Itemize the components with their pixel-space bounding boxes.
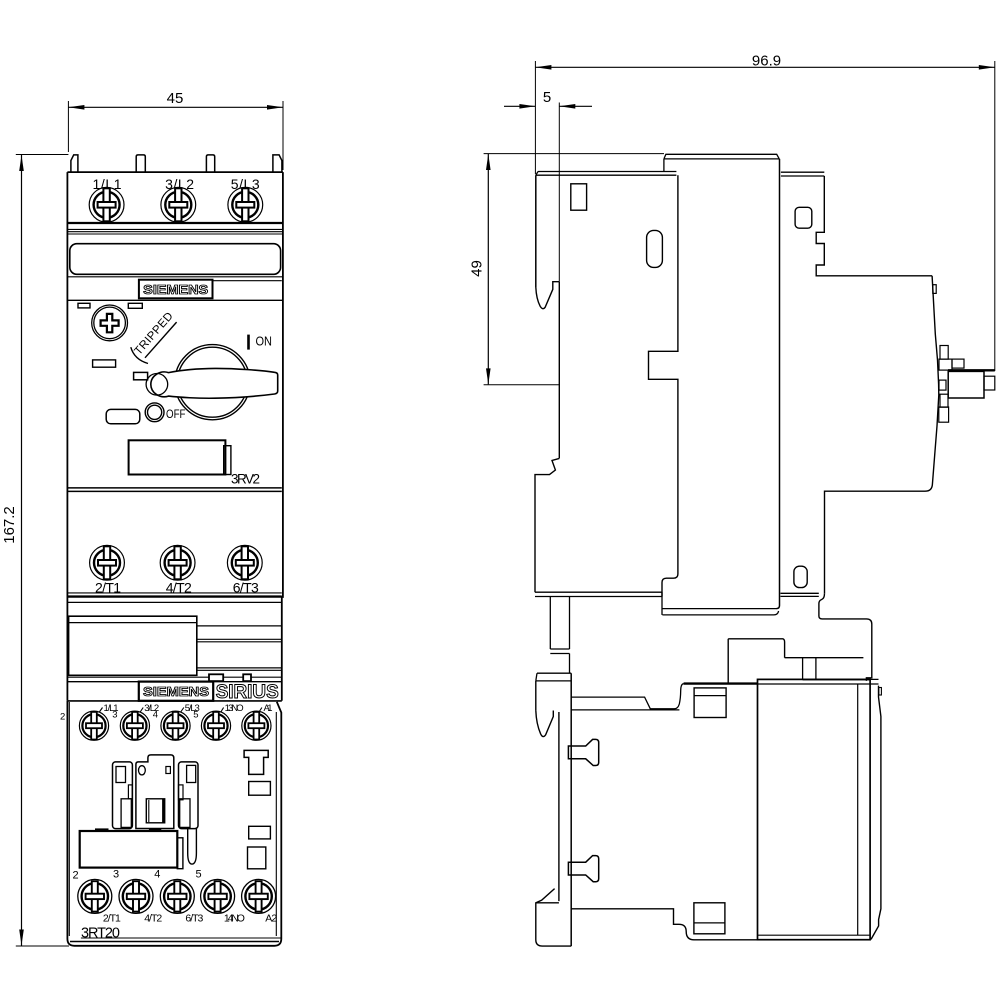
svg-text:4: 4 <box>153 710 158 721</box>
svg-text:13NO: 13NO <box>225 703 244 714</box>
svg-text:SIEMENS: SIEMENS <box>143 283 208 297</box>
svg-text:96.9: 96.9 <box>752 53 781 70</box>
svg-text:2: 2 <box>60 711 65 722</box>
svg-text:3: 3 <box>112 710 117 721</box>
svg-text:45: 45 <box>167 90 184 107</box>
svg-text:A2: A2 <box>265 913 277 925</box>
svg-text:A1: A1 <box>264 703 273 714</box>
svg-text:3: 3 <box>113 869 119 881</box>
svg-text:14NO: 14NO <box>224 913 245 925</box>
svg-text:5: 5 <box>543 89 551 106</box>
svg-text:5: 5 <box>196 869 202 881</box>
svg-text:SIEMENS: SIEMENS <box>143 685 209 699</box>
svg-text:167.2: 167.2 <box>1 506 18 544</box>
svg-text:OFF: OFF <box>166 407 186 421</box>
svg-text:49: 49 <box>469 260 486 277</box>
svg-text:4/T2: 4/T2 <box>144 913 162 925</box>
svg-text:ON: ON <box>256 335 273 349</box>
svg-text:3RV2: 3RV2 <box>231 471 260 486</box>
svg-text:3RT20: 3RT20 <box>81 926 120 942</box>
svg-text:4: 4 <box>154 869 160 881</box>
svg-text:SIRIUS: SIRIUS <box>216 681 279 703</box>
svg-text:2: 2 <box>73 870 79 882</box>
svg-text:5: 5 <box>193 710 198 721</box>
svg-text:6/T3: 6/T3 <box>185 913 203 925</box>
svg-text:2/T1: 2/T1 <box>103 913 121 925</box>
